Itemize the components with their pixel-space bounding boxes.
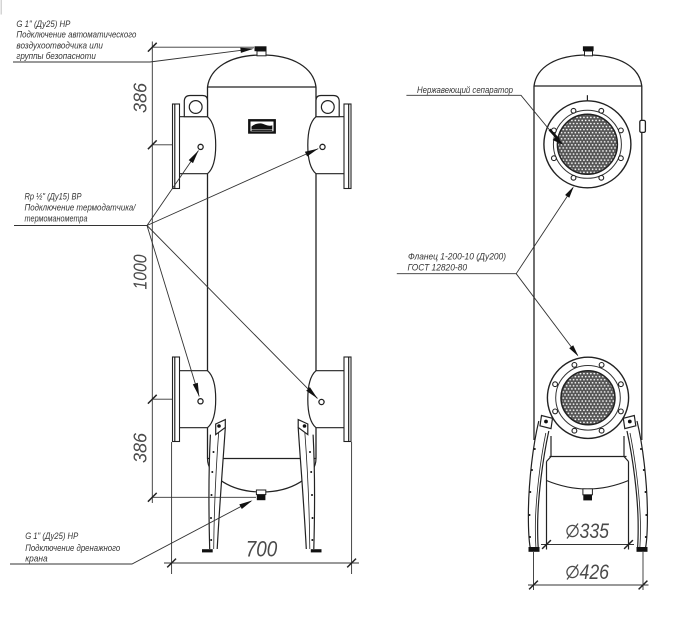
svg-text:700: 700 (246, 537, 278, 562)
svg-text:ГОСТ 12820-80: ГОСТ 12820-80 (408, 262, 468, 273)
svg-text:386: 386 (131, 432, 151, 463)
svg-text:группы безопасноти: группы безопасноти (16, 51, 96, 62)
svg-text:воздухоотводчика или: воздухоотводчика или (16, 40, 103, 51)
svg-text:Фланец 1-200-10 (Ду200): Фланец 1-200-10 (Ду200) (408, 251, 506, 262)
svg-text:386: 386 (131, 82, 151, 113)
svg-text:крана: крана (25, 554, 48, 565)
svg-text:Подключение автоматического: Подключение автоматического (16, 30, 137, 41)
svg-text:G 1" (Ду25) НР: G 1" (Ду25) НР (25, 531, 78, 542)
svg-text:335: 335 (580, 520, 610, 543)
svg-text:Нержавеющий сепаратор: Нержавеющий сепаратор (417, 85, 514, 96)
svg-text:1000: 1000 (131, 255, 151, 290)
svg-text:Подключение термодатчика/: Подключение термодатчика/ (25, 203, 137, 214)
svg-text:G 1" (Ду25) НР: G 1" (Ду25) НР (16, 19, 70, 30)
svg-text:426: 426 (580, 561, 610, 584)
svg-text:Подключение дренажного: Подключение дренажного (25, 543, 121, 554)
svg-text:термоманометра: термоманометра (25, 214, 88, 225)
svg-text:Rp ½" (Ду15) ВР: Rp ½" (Ду15) ВР (25, 192, 82, 203)
